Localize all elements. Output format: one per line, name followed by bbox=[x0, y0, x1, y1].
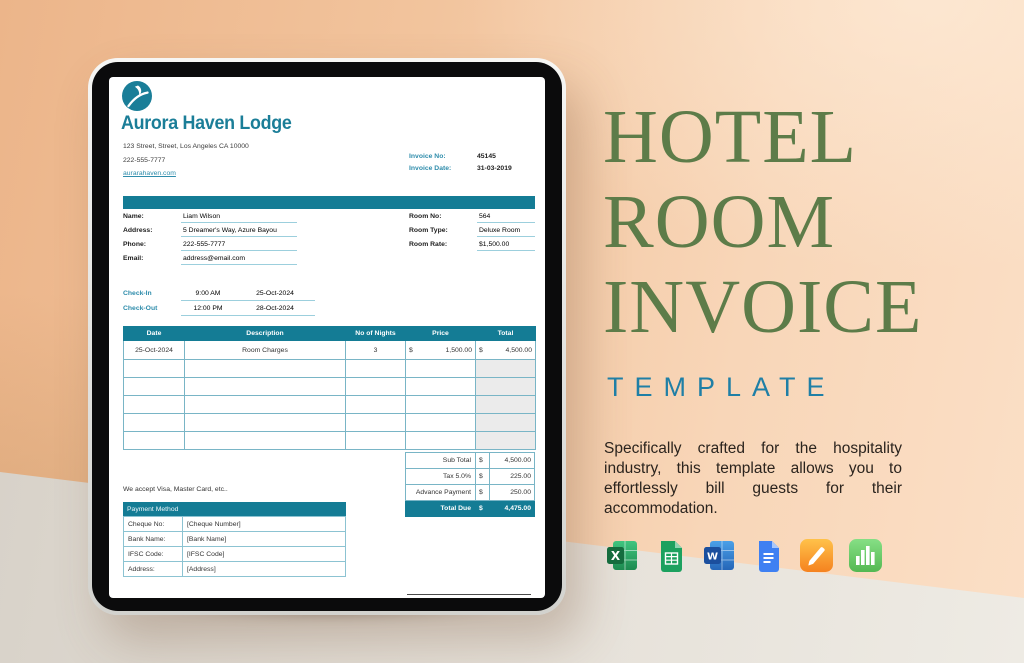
empty-cell bbox=[406, 360, 476, 378]
col-header-description: Description bbox=[185, 327, 346, 341]
tax-row: Tax 5.0% $ 225.00 bbox=[406, 469, 535, 485]
charge-date: 25-Oct-2024 bbox=[124, 341, 185, 360]
total-due-row: Total Due $ 4,475.00 bbox=[406, 501, 535, 517]
teal-divider-band bbox=[123, 196, 535, 209]
room-type-value: Deluxe Room bbox=[477, 227, 535, 237]
charges-empty-row bbox=[124, 360, 536, 378]
empty-cell bbox=[476, 414, 536, 432]
subtotal-value: 4,500.00 bbox=[490, 453, 535, 469]
empty-cell bbox=[406, 378, 476, 396]
cards-accepted-note: We accept Visa, Master Card, etc.. bbox=[123, 486, 228, 493]
charge-total: $4,500.00 bbox=[476, 341, 536, 360]
currency-symbol: $ bbox=[476, 501, 490, 517]
guest-name-label: Name: bbox=[123, 213, 181, 220]
tablet-device: Aurora Haven Lodge 123 Street, Street, L… bbox=[88, 58, 566, 615]
check-out-time: 12:00 PM bbox=[181, 305, 235, 315]
invoice-document: Aurora Haven Lodge 123 Street, Street, L… bbox=[109, 77, 545, 598]
empty-cell bbox=[406, 414, 476, 432]
empty-cell bbox=[476, 360, 536, 378]
invoice-no-label: Invoice No: bbox=[409, 153, 477, 160]
tax-value: 225.00 bbox=[490, 469, 535, 485]
empty-cell bbox=[185, 432, 346, 450]
empty-cell bbox=[476, 432, 536, 450]
empty-cell bbox=[185, 414, 346, 432]
svg-text:W: W bbox=[707, 552, 718, 563]
lodge-logo-bird-icon bbox=[121, 80, 153, 112]
charge-nights: 3 bbox=[346, 341, 406, 360]
empty-cell bbox=[124, 414, 185, 432]
address-label: Address: bbox=[124, 562, 183, 577]
company-name: Aurora Haven Lodge bbox=[121, 113, 292, 135]
invoice-meta: Invoice No: 45145 Invoice Date: 31-03-20… bbox=[409, 153, 512, 172]
charges-table: Date Description No of Nights Price Tota… bbox=[123, 326, 536, 450]
advance-label: Advance Payment bbox=[406, 485, 476, 501]
payment-method-header: Payment Method bbox=[123, 502, 346, 516]
tax-label: Tax 5.0% bbox=[406, 469, 476, 485]
empty-cell bbox=[346, 378, 406, 396]
scene: Aurora Haven Lodge 123 Street, Street, L… bbox=[0, 0, 1024, 663]
invoice-no-value: 45145 bbox=[477, 153, 512, 160]
word-icon[interactable]: W bbox=[703, 539, 736, 572]
room-rate-label: Room Rate: bbox=[409, 241, 477, 248]
stay-dates: Check-In 9:00 AM25-Oct-2024 Check-Out 12… bbox=[123, 290, 315, 320]
charges-row: 25-Oct-2024 Room Charges 3 $1,500.00 $4,… bbox=[124, 341, 536, 360]
col-header-date: Date bbox=[124, 327, 185, 341]
guest-address-label: Address: bbox=[123, 227, 181, 234]
room-no-label: Room No: bbox=[409, 213, 477, 220]
hero-title-line1: HOTEL bbox=[603, 95, 922, 180]
empty-cell bbox=[476, 396, 536, 414]
pages-icon[interactable] bbox=[800, 539, 833, 572]
cheque-no-label: Cheque No: bbox=[124, 517, 183, 532]
company-website-link[interactable]: aurarahaven.com bbox=[123, 170, 176, 177]
google-docs-icon[interactable] bbox=[752, 539, 785, 572]
hero-title-line2: ROOM bbox=[603, 180, 922, 265]
cheque-no-value: [Cheque Number] bbox=[183, 517, 346, 532]
currency-symbol: $ bbox=[476, 469, 490, 485]
total-due-value: 4,475.00 bbox=[490, 501, 535, 517]
ifsc-code-value: [IFSC Code] bbox=[183, 547, 346, 562]
guest-details: Name:Liam Wilson Address:5 Dreamer's Way… bbox=[123, 213, 297, 269]
numbers-icon[interactable] bbox=[849, 539, 882, 572]
company-phone: 222-555-7777 bbox=[123, 157, 165, 164]
hero-title: HOTEL ROOM INVOICE bbox=[603, 95, 922, 350]
invoice-date-label: Invoice Date: bbox=[409, 165, 477, 172]
check-in-label: Check-In bbox=[123, 290, 181, 305]
charges-empty-row bbox=[124, 378, 536, 396]
empty-cell bbox=[346, 414, 406, 432]
totals-table: Sub Total $ 4,500.00 Tax 5.0% $ 225.00 A… bbox=[405, 452, 535, 517]
guest-email-label: Email: bbox=[123, 255, 181, 262]
charges-empty-row bbox=[124, 396, 536, 414]
subtotal-label: Sub Total bbox=[406, 453, 476, 469]
empty-cell bbox=[346, 360, 406, 378]
bank-name-value: [Bank Name] bbox=[183, 532, 346, 547]
charge-description: Room Charges bbox=[185, 341, 346, 360]
tablet-bezel: Aurora Haven Lodge 123 Street, Street, L… bbox=[92, 62, 562, 611]
empty-cell bbox=[406, 396, 476, 414]
room-no-value: 564 bbox=[477, 213, 535, 223]
guest-phone-value: 222-555-7777 bbox=[181, 241, 297, 251]
guest-address-value: 5 Dreamer's Way, Azure Bayou bbox=[181, 227, 297, 237]
payment-method-section: Payment Method Cheque No:[Cheque Number]… bbox=[123, 502, 346, 577]
empty-cell bbox=[346, 396, 406, 414]
subtotal-row: Sub Total $ 4,500.00 bbox=[406, 453, 535, 469]
check-out-label: Check-Out bbox=[123, 305, 181, 320]
empty-cell bbox=[476, 378, 536, 396]
charges-empty-row bbox=[124, 432, 536, 450]
empty-cell bbox=[124, 396, 185, 414]
hero-subtitle: TEMPLATE bbox=[607, 372, 836, 403]
empty-cell bbox=[185, 378, 346, 396]
currency-symbol: $ bbox=[476, 453, 490, 469]
empty-cell bbox=[185, 360, 346, 378]
company-address: 123 Street, Street, Los Angeles CA 10000 bbox=[123, 143, 249, 150]
room-rate-value: $1,500.00 bbox=[477, 241, 535, 251]
guest-phone-label: Phone: bbox=[123, 241, 181, 248]
signature-line bbox=[407, 594, 531, 595]
invoice-date-value: 31-03-2019 bbox=[477, 165, 512, 172]
col-header-nights: No of Nights bbox=[346, 327, 406, 341]
google-sheets-icon[interactable] bbox=[655, 539, 688, 572]
empty-cell bbox=[124, 378, 185, 396]
guest-email-value: address@email.com bbox=[181, 255, 297, 265]
empty-cell bbox=[346, 432, 406, 450]
check-in-time: 9:00 AM bbox=[181, 290, 235, 300]
bank-name-label: Bank Name: bbox=[124, 532, 183, 547]
hero-description: Specifically crafted for the hospitality… bbox=[604, 439, 902, 519]
empty-cell bbox=[406, 432, 476, 450]
guest-name-value: Liam Wilson bbox=[181, 213, 297, 223]
col-header-price: Price bbox=[406, 327, 476, 341]
room-type-label: Room Type: bbox=[409, 227, 477, 234]
hero-title-line3: INVOICE bbox=[603, 265, 922, 350]
advance-value: 250.00 bbox=[490, 485, 535, 501]
currency-symbol: $ bbox=[476, 485, 490, 501]
empty-cell bbox=[185, 396, 346, 414]
charges-empty-row bbox=[124, 414, 536, 432]
empty-cell bbox=[124, 432, 185, 450]
col-header-total: Total bbox=[476, 327, 536, 341]
svg-text:X: X bbox=[611, 549, 621, 563]
total-due-label: Total Due bbox=[406, 501, 476, 517]
ifsc-code-label: IFSC Code: bbox=[124, 547, 183, 562]
room-details: Room No:564 Room Type:Deluxe Room Room R… bbox=[409, 213, 535, 255]
address-value: [Address] bbox=[183, 562, 346, 577]
check-out-date: 28-Oct-2024 bbox=[235, 305, 315, 315]
app-icons-row: X W bbox=[606, 539, 882, 572]
empty-cell bbox=[124, 360, 185, 378]
excel-icon[interactable]: X bbox=[606, 539, 639, 572]
charge-price: $1,500.00 bbox=[406, 341, 476, 360]
check-in-date: 25-Oct-2024 bbox=[235, 290, 315, 300]
advance-row: Advance Payment $ 250.00 bbox=[406, 485, 535, 501]
